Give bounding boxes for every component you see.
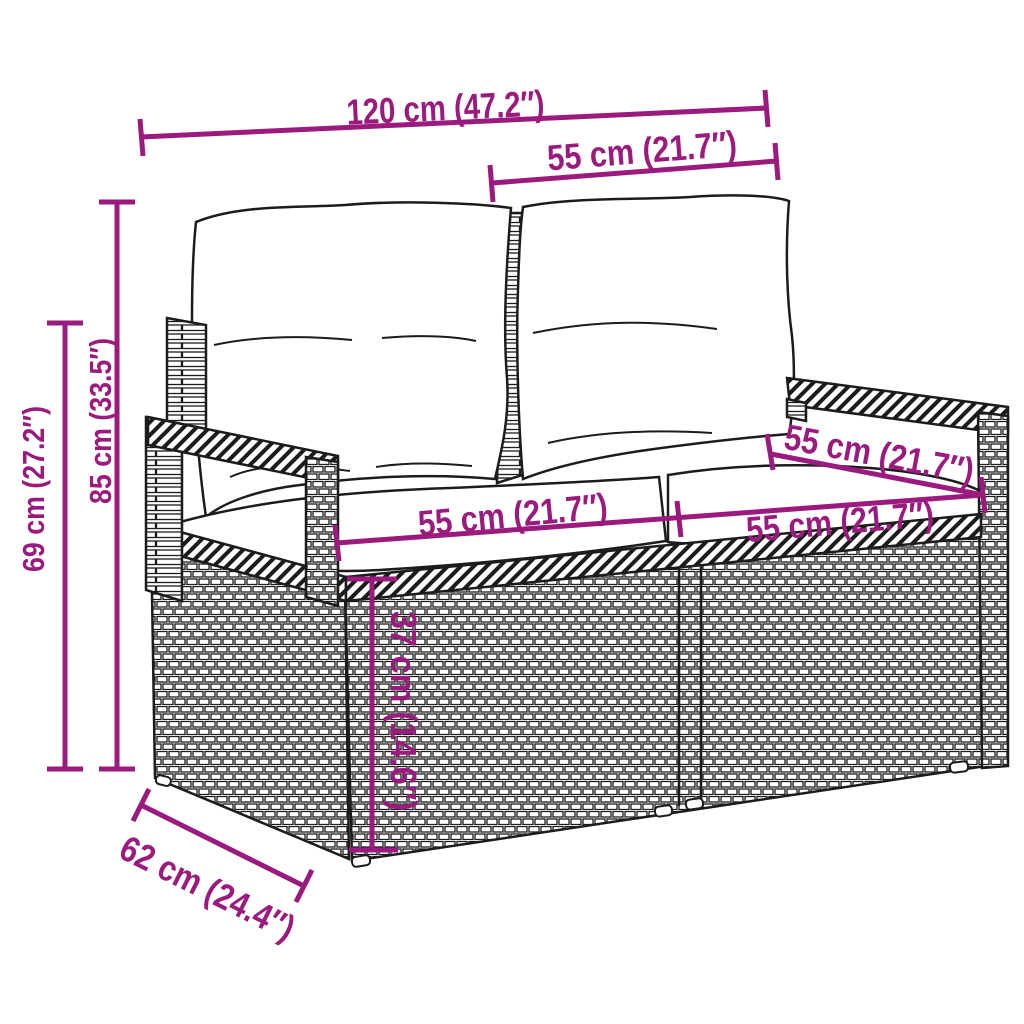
dim-seat-width-top-tick-right — [775, 143, 778, 180]
dim-overall-width-label: 120 cm (47.2″) — [346, 82, 546, 132]
dim-seat-height-label: 37 cm (14.6″) — [383, 611, 424, 811]
dim-arm-height-label: 69 cm (27.2″) — [16, 406, 51, 572]
dim-total-height: 85 cm (33.5″) — [83, 202, 135, 769]
dim-seat-width-top: 55 cm (21.7″) — [490, 123, 778, 202]
dim-overall-depth-label: 62 cm (24.4″) — [113, 827, 301, 948]
dim-overall-width-tick-left — [140, 119, 143, 156]
dim-arm-height: 69 cm (27.2″) — [16, 323, 83, 769]
dim-total-height-label: 85 cm (33.5″) — [83, 338, 118, 504]
back-cushion-left — [192, 202, 511, 517]
product-dimension-diagram: 120 cm (47.2″) 55 cm (21.7″) 85 cm (33.5… — [0, 0, 1024, 1024]
base-right-post — [978, 412, 1008, 768]
armrest-left-front-post — [306, 457, 338, 606]
diagram-canvas: 120 cm (47.2″) 55 cm (21.7″) 85 cm (33.5… — [0, 0, 1024, 1024]
back-cushion-right — [517, 195, 794, 479]
dim-seat-width-top-label: 55 cm (21.7″) — [546, 123, 739, 179]
dim-overall-width-tick-right — [765, 90, 768, 127]
dim-seat-width-top-tick-left — [490, 165, 493, 202]
